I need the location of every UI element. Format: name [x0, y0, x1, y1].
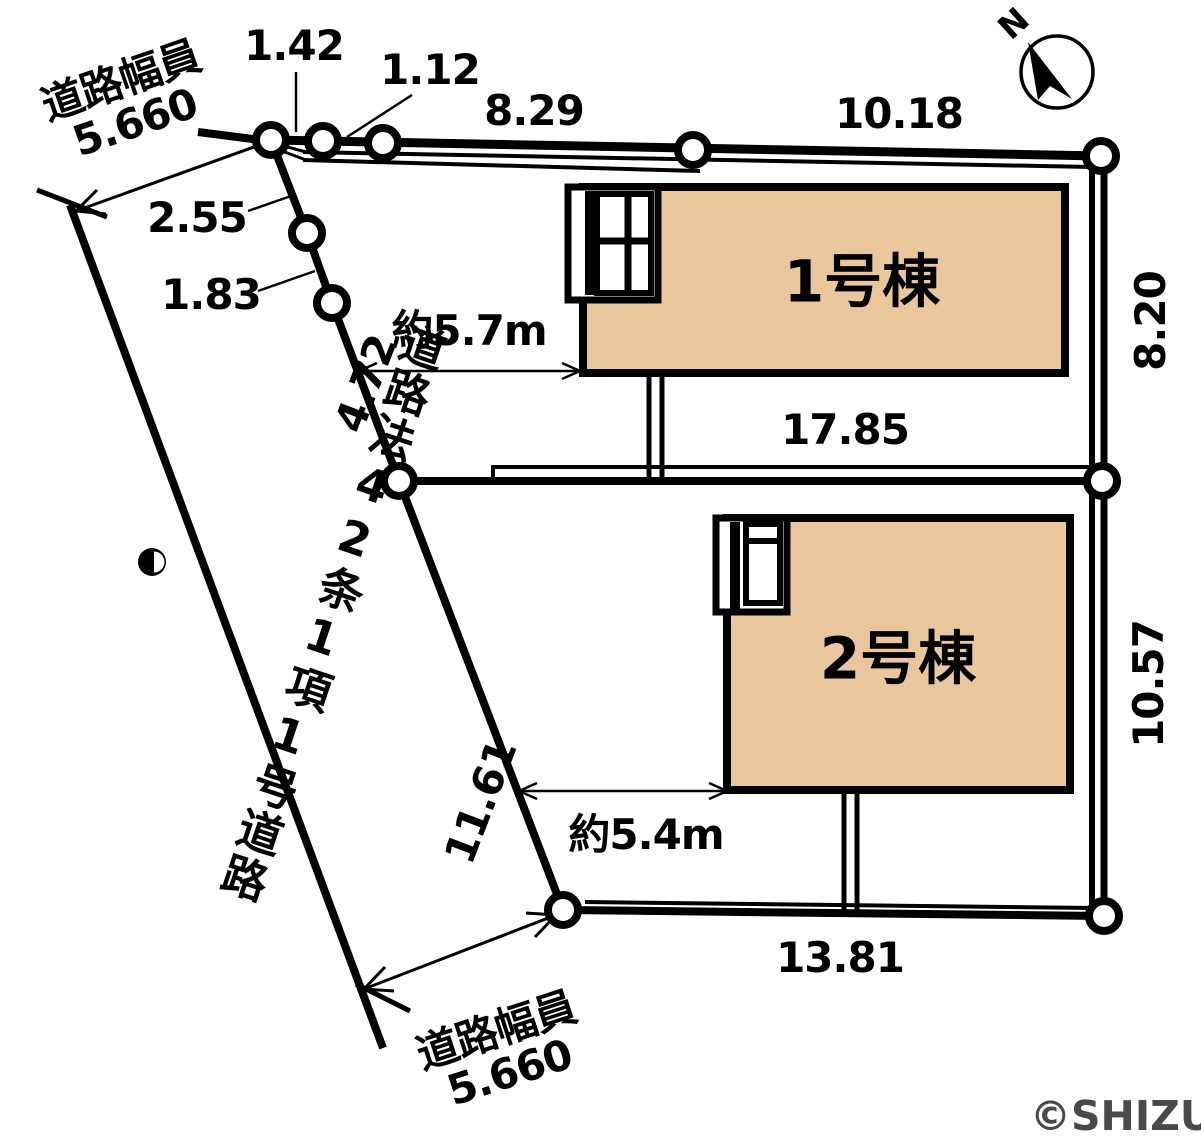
utility-pole-icon	[138, 548, 166, 576]
dim-label-183: 1.83	[161, 273, 261, 317]
road-width-dim-bottom	[364, 913, 556, 991]
boundary-bottom	[563, 910, 1104, 916]
compass-icon	[1021, 36, 1093, 108]
building-1-label: 1号棟	[784, 252, 940, 313]
building-2-window	[716, 518, 787, 612]
copyright-watermark: ©SHIZUNAVI	[1030, 1092, 1201, 1140]
building-2-label: 2号棟	[820, 629, 976, 690]
setback-label-building2: 約5.4m	[568, 813, 723, 857]
setback-arrow-building2	[519, 783, 727, 799]
dim-label-1381: 13.81	[776, 936, 904, 980]
site-plan-page: { "dims": { "d142": "1.42", "d112": "1.1…	[0, 0, 1201, 1132]
dim-label-1785: 17.85	[781, 408, 909, 452]
dim-label-1018: 10.18	[835, 92, 963, 136]
site-plan-drawing	[0, 0, 1201, 1132]
dim-label-1057: 10.57	[1127, 620, 1171, 748]
road-edge-offset-2	[303, 160, 700, 171]
dim-label-829: 8.29	[484, 89, 584, 133]
dim-label-112: 1.12	[380, 48, 480, 92]
dim-label-820: 8.20	[1129, 271, 1173, 371]
dimension-leaders	[248, 72, 412, 291]
boundary-left	[271, 140, 563, 910]
dim-label-255: 2.55	[147, 196, 247, 240]
building-1-window	[568, 187, 658, 300]
dim-label-142: 1.42	[244, 24, 344, 68]
